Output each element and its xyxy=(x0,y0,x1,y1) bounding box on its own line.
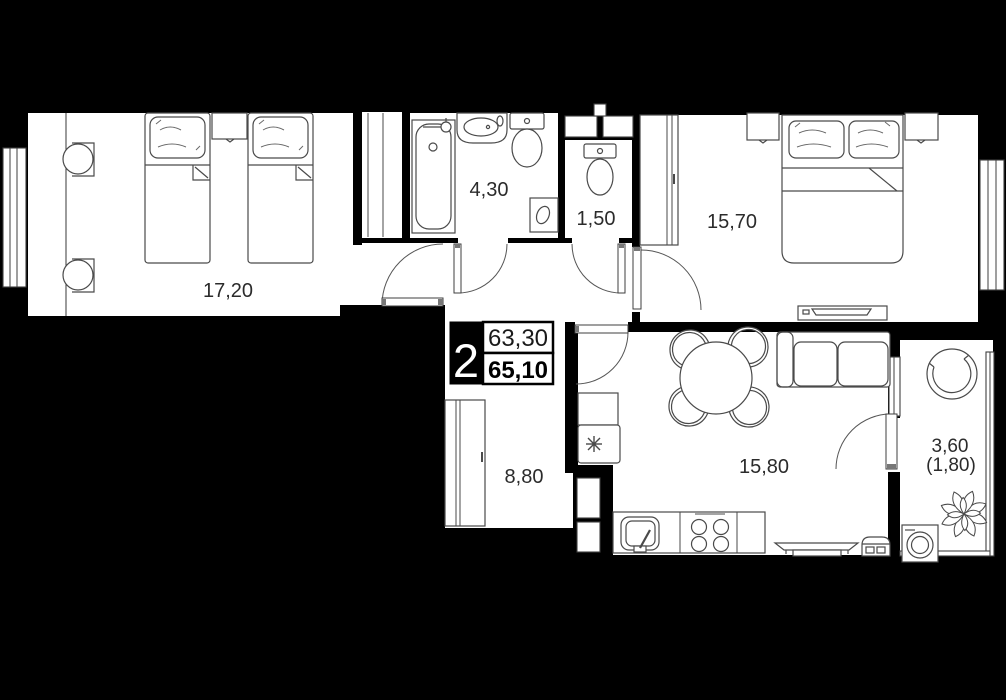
badge-area-bottom: 65,10 xyxy=(488,357,548,384)
doorway-bedroom-twin xyxy=(353,245,362,305)
window-icon xyxy=(980,160,1004,290)
washbasin-icon xyxy=(457,113,507,143)
toilet-icon xyxy=(584,144,616,195)
single-bed-icon xyxy=(248,113,313,263)
double-bed-icon xyxy=(782,115,903,263)
badge-area-top: 63,30 xyxy=(488,325,548,352)
nightstand-icon xyxy=(905,113,938,143)
room-label-bathroom: 4,30 xyxy=(470,179,509,201)
vent-shaft-icon xyxy=(603,116,633,137)
media-unit-icon xyxy=(862,537,890,556)
floor-plan-canvas: 17,20 4,30 1,50 15,70 8,80 15,80 3,60 (1… xyxy=(0,0,1006,700)
vent-shaft-icon xyxy=(577,522,600,552)
vent-shaft-icon xyxy=(594,104,606,116)
doorway-bathroom xyxy=(458,236,508,244)
toilet-icon xyxy=(510,113,544,167)
nightstand-icon xyxy=(212,113,247,142)
sofa-icon xyxy=(777,332,890,387)
room-label-balcony-reduced: (1,80) xyxy=(926,455,976,476)
floor-plan-svg: 17,20 4,30 1,50 15,70 8,80 15,80 3,60 (1… xyxy=(0,0,1006,700)
room-label-toilet: 1,50 xyxy=(577,208,616,230)
room-label-balcony: 3,60 xyxy=(932,436,969,457)
kitchen-sink-icon xyxy=(621,517,659,552)
room-label-hallway: 8,80 xyxy=(505,466,544,488)
furniture-hallway xyxy=(445,400,485,526)
apartment-badge: 2 63,30 65,10 xyxy=(450,322,553,387)
room-label-bedroom-master: 15,70 xyxy=(707,211,757,233)
fridge-icon xyxy=(578,425,620,463)
bathtub-icon xyxy=(412,118,455,233)
washing-machine-icon xyxy=(902,525,938,562)
window-icon xyxy=(3,148,26,287)
tv-desk-icon xyxy=(798,306,887,320)
cabinet-icon xyxy=(578,393,618,425)
wall-entrance xyxy=(340,305,445,332)
room-label-bedroom-twin: 17,20 xyxy=(203,280,253,302)
nightstand-icon xyxy=(747,113,779,143)
water-heater-icon xyxy=(530,198,558,232)
furniture-toilet xyxy=(584,144,616,195)
doorway-toilet xyxy=(572,236,619,244)
dining-table-icon xyxy=(680,342,752,414)
wardrobe-icon xyxy=(445,400,485,526)
badge-rooms-count: 2 xyxy=(453,334,479,387)
vent-shaft-icon xyxy=(565,116,597,137)
room-label-kitchen-living: 15,80 xyxy=(739,456,789,478)
round-chair-icon xyxy=(927,349,977,399)
vent-shaft-icon xyxy=(577,478,600,518)
single-bed-icon xyxy=(145,113,210,263)
wardrobe-icon xyxy=(640,115,678,245)
